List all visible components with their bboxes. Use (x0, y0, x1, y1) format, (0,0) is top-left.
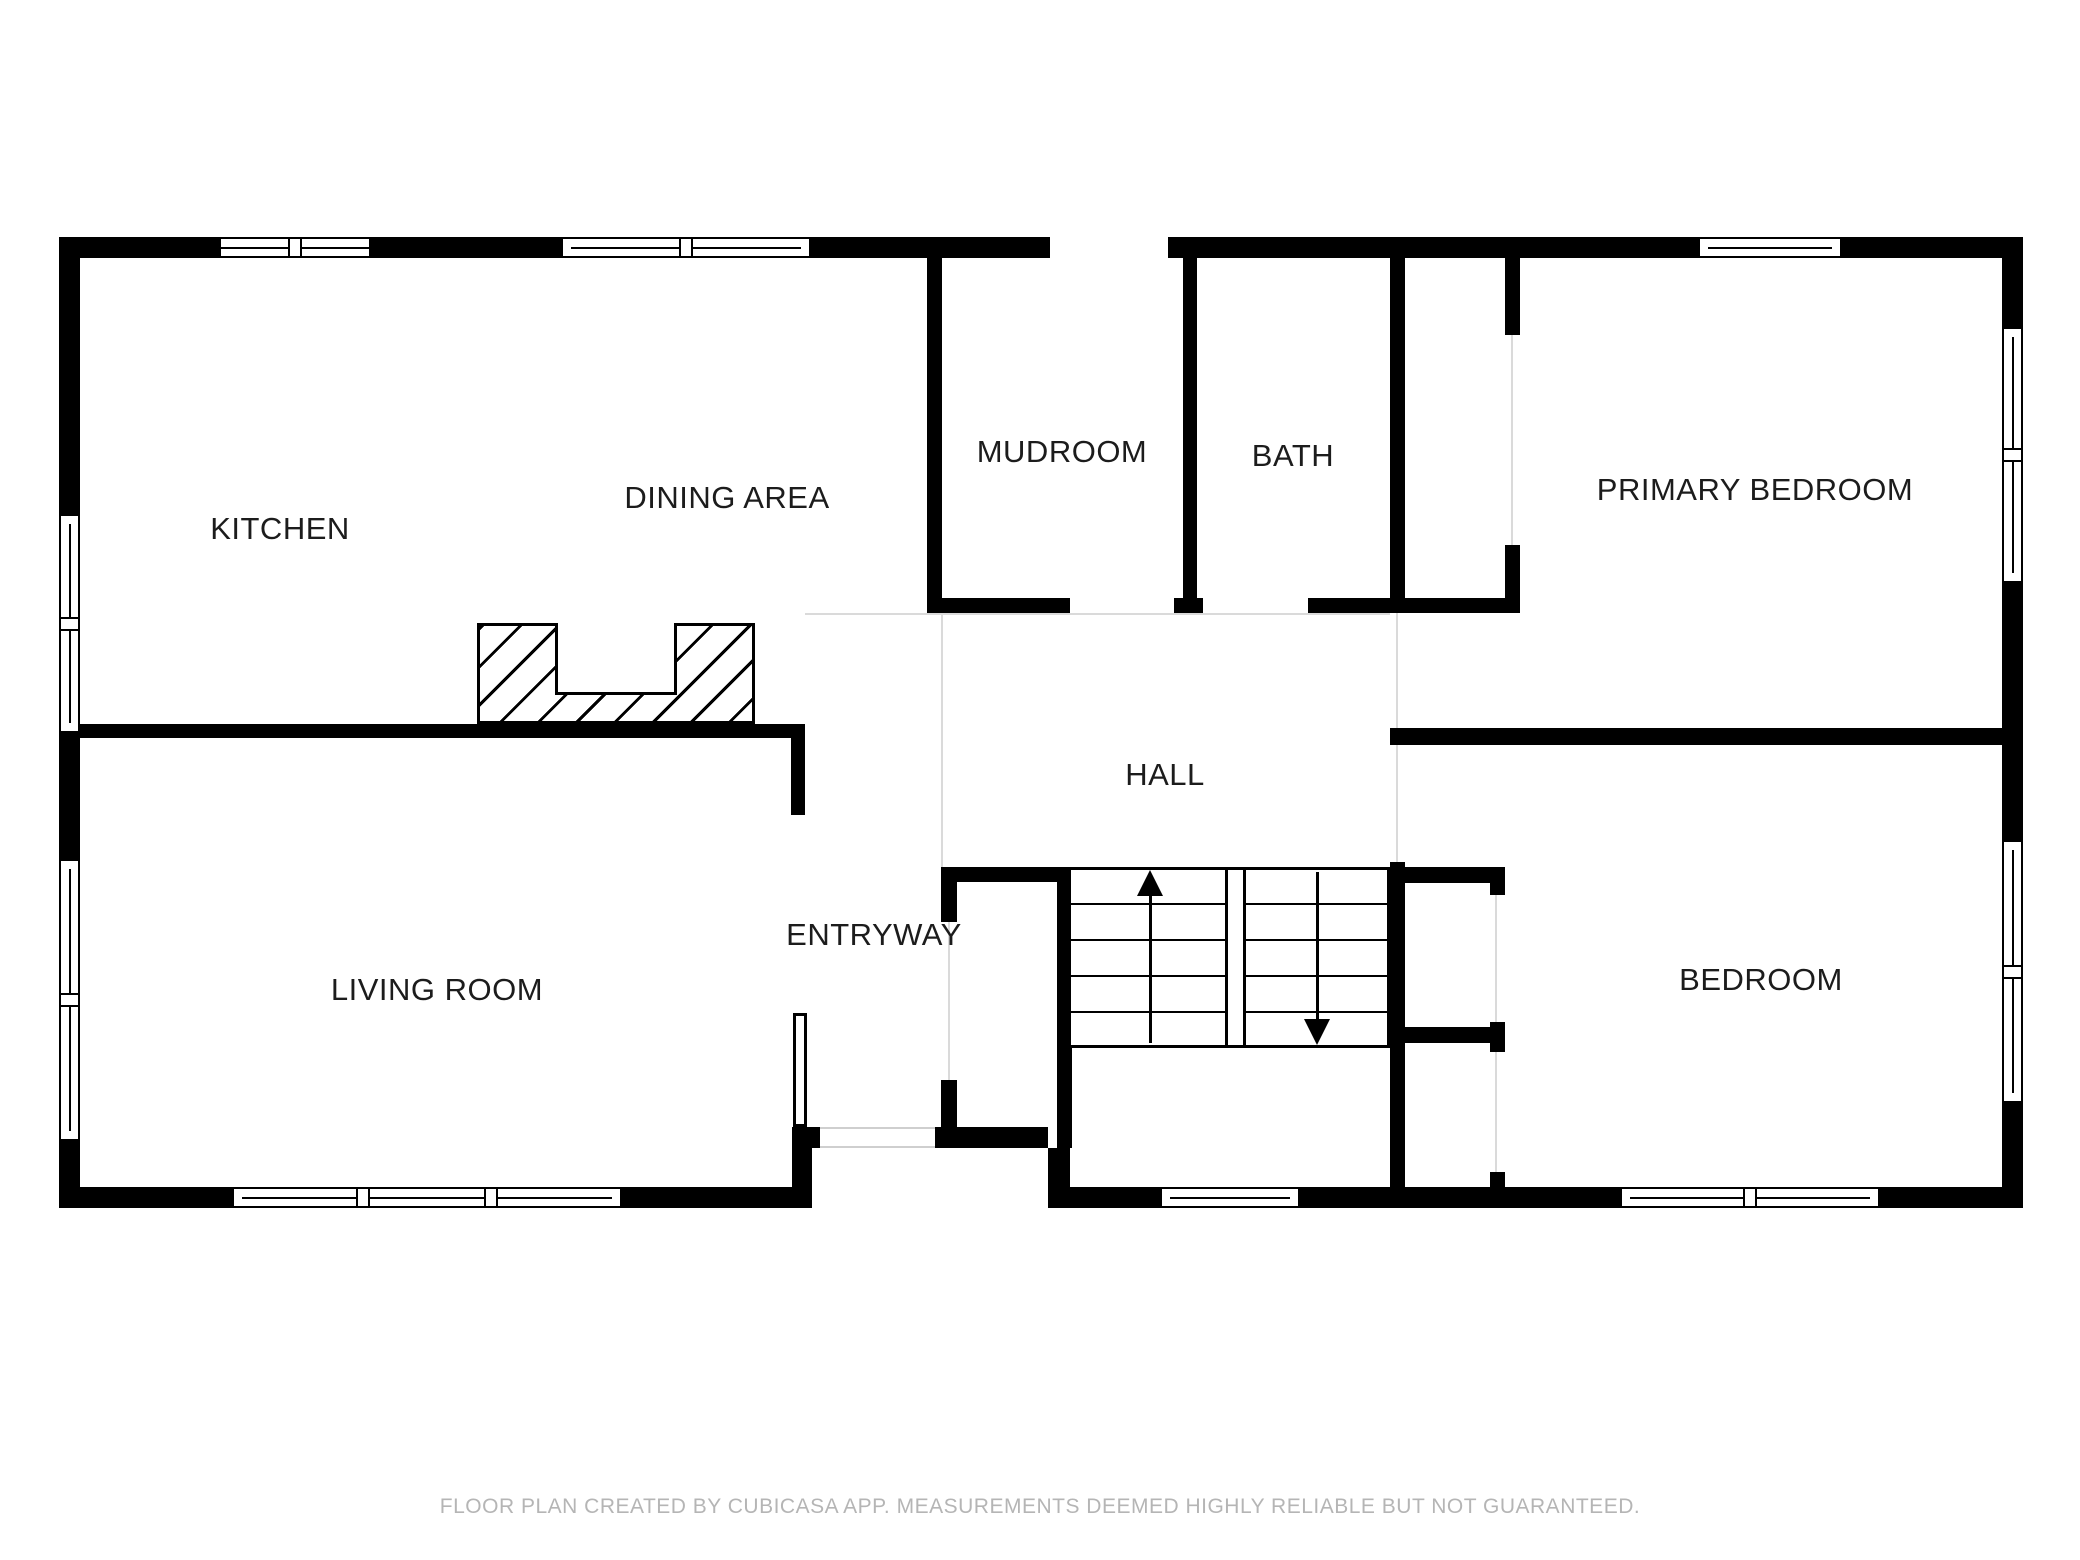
room-label-dining: DINING AREA (624, 480, 829, 516)
wall-mudroom-bottom (927, 598, 1070, 613)
window-pane (302, 239, 369, 256)
window-frame (2004, 573, 2021, 581)
wall-entry-closet-left-bottom (941, 1080, 957, 1148)
stair-tread (1243, 1011, 1387, 1013)
window-pane (1630, 1189, 1743, 1206)
wall-divider-stub (791, 738, 805, 815)
room-label-hall: HALL (1125, 757, 1205, 793)
window-pane (370, 1189, 484, 1206)
window (59, 514, 80, 733)
window-mullion (61, 993, 78, 1007)
window-pane (242, 1189, 356, 1206)
boundary-hairline-hall-top (805, 613, 1390, 615)
window-frame (801, 239, 809, 256)
window-pane (2004, 462, 2021, 573)
wall-bedroom-left-nub (1490, 1172, 1505, 1187)
stairs-up-arrow-icon (1137, 870, 1163, 896)
window-frame (1700, 239, 1708, 256)
window (59, 859, 80, 1141)
wall-entry-step-left (792, 1148, 812, 1208)
front-door-leaf (793, 1013, 807, 1127)
window-mullion (1743, 1189, 1757, 1206)
room-label-entryway: ENTRYWAY (786, 917, 962, 953)
kitchen-counter (477, 623, 755, 724)
window-frame (563, 239, 571, 256)
wall-entry-step-right (1048, 1148, 1070, 1208)
door-opening-hairline-primary-closet (1511, 335, 1513, 545)
window (561, 237, 811, 258)
window-pane (498, 1189, 612, 1206)
wall-right (2002, 237, 2023, 327)
room-label-kitchen: KITCHEN (210, 511, 350, 547)
window (2002, 327, 2023, 583)
wall-top (59, 237, 219, 258)
window-frame (61, 723, 78, 731)
window-mullion (356, 1189, 370, 1206)
window-mullion (484, 1189, 498, 1206)
boundary-hairline-hall-closets (1396, 745, 1398, 862)
wall-hall-primary (1390, 728, 2002, 745)
window-mullion (679, 239, 693, 256)
window (1160, 1187, 1300, 1208)
wall-entry-closet-left-top (941, 867, 957, 922)
window-frame (1162, 1189, 1170, 1206)
window-pane (221, 239, 288, 256)
window-frame (1622, 1189, 1630, 1206)
window-frame (61, 1131, 78, 1139)
window-frame (1832, 239, 1840, 256)
wall-primary-closet-stub-bottom (1505, 545, 1520, 613)
window (219, 237, 371, 258)
wall-right (2002, 583, 2023, 840)
window (1698, 237, 1842, 258)
window-mullion (288, 239, 302, 256)
wall-stair-right (1390, 862, 1405, 1208)
window-pane (61, 524, 78, 617)
stairs-up-arrow (1149, 888, 1152, 1043)
window-frame (612, 1189, 620, 1206)
wall-bath-right (1390, 237, 1405, 613)
wall-left (59, 733, 80, 859)
disclaimer-text: FLOOR PLAN CREATED BY CUBICASA APP. MEAS… (440, 1495, 1640, 1519)
stairs-down-arrow (1316, 872, 1319, 1022)
window-pane (571, 239, 679, 256)
window (232, 1187, 622, 1208)
window-frame (61, 516, 78, 524)
window-mullion (2004, 448, 2021, 462)
wall-bottom (59, 1187, 232, 1208)
wall-bath-closet-bottom (1308, 598, 1520, 613)
room-label-bedroom: BEDROOM (1679, 962, 1843, 998)
door-opening-hairline-bedroom-closet-bottom (1495, 1052, 1497, 1172)
kitchen-sink (555, 623, 677, 695)
stair-divider (1225, 870, 1228, 1045)
wall-top (371, 237, 561, 258)
window-pane (61, 631, 78, 724)
wall-bath-left-stub (1174, 598, 1203, 613)
room-label-bath: BATH (1252, 438, 1334, 474)
window-mullion (61, 617, 78, 631)
wall-closet-top-return (1490, 883, 1505, 895)
window-pane (2004, 337, 2021, 448)
window-pane (1170, 1189, 1290, 1206)
window-pane (1708, 239, 1832, 256)
wall-closet-top (1405, 867, 1505, 883)
wall-kitchen-living-divider (59, 724, 805, 738)
window (1620, 1187, 1880, 1208)
window-frame (234, 1189, 242, 1206)
wall-mudroom-left (927, 237, 942, 613)
floor-plan: KITCHEN DINING AREA MUDROOM BATH PRIMARY… (0, 0, 2080, 1560)
door-opening-hairline-bedroom-closet-top (1495, 892, 1497, 1022)
wall-closet-divider-cap (1490, 1022, 1505, 1052)
boundary-hairline-dining-entry (941, 613, 943, 867)
window-pane (61, 869, 78, 993)
window-frame (2004, 842, 2021, 850)
wall-top (1842, 237, 2023, 258)
room-label-primary: PRIMARY BEDROOM (1597, 472, 1913, 508)
wall-bottom (622, 1187, 812, 1208)
stairs-down-arrow-icon (1304, 1019, 1330, 1045)
front-door-opening (820, 1127, 935, 1148)
window-pane (1757, 1189, 1870, 1206)
wall-entry-front-left (792, 1127, 820, 1148)
wall-primary-closet-stub-top (1505, 237, 1520, 335)
stair-tread (1243, 939, 1387, 941)
room-label-living: LIVING ROOM (331, 972, 543, 1008)
staircase (1068, 867, 1390, 1048)
boundary-hairline-hall-primary (1396, 613, 1398, 728)
wall-bottom (1300, 1187, 1620, 1208)
window-frame (2004, 1093, 2021, 1101)
stair-tread (1243, 975, 1387, 977)
window-frame (2004, 329, 2021, 337)
wall-bottom (1880, 1187, 2023, 1208)
window-pane (2004, 850, 2021, 965)
window-frame (1870, 1189, 1878, 1206)
wall-entry-closet-top (941, 867, 1072, 882)
window-pane (61, 1007, 78, 1131)
room-label-mudroom: MUDROOM (977, 434, 1148, 470)
window-pane (693, 239, 801, 256)
wall-bath-left (1183, 237, 1197, 613)
wall-left (59, 237, 80, 514)
window-mullion (2004, 965, 2021, 979)
window-pane (2004, 979, 2021, 1094)
stair-tread (1243, 903, 1387, 905)
window (2002, 840, 2023, 1103)
window-frame (61, 861, 78, 869)
wall-top (1168, 237, 1698, 258)
stair-divider (1243, 870, 1246, 1045)
window-frame (1290, 1189, 1298, 1206)
